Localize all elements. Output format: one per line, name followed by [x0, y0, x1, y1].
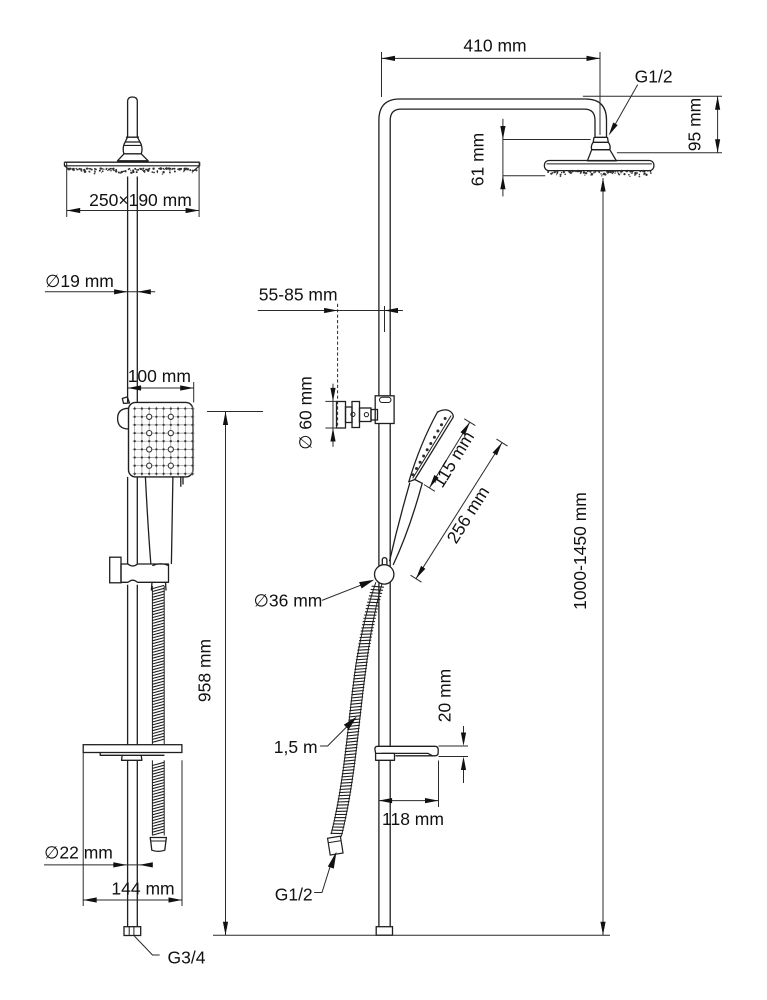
svg-text:1,5 m: 1,5 m: [274, 737, 318, 757]
svg-text:∅19 mm: ∅19 mm: [45, 271, 114, 291]
svg-text:256 mm: 256 mm: [443, 483, 494, 547]
svg-text:∅ 60 mm: ∅ 60 mm: [296, 376, 316, 450]
svg-text:100 mm: 100 mm: [128, 366, 191, 386]
svg-text:958 mm: 958 mm: [195, 639, 215, 702]
svg-text:61 mm: 61 mm: [468, 133, 488, 186]
svg-text:1000-1450 mm: 1000-1450 mm: [570, 492, 590, 610]
svg-text:118 mm: 118 mm: [382, 809, 444, 829]
svg-text:55-85 mm: 55-85 mm: [259, 284, 338, 304]
svg-text:G1/2: G1/2: [275, 885, 313, 905]
svg-text:144 mm: 144 mm: [111, 879, 174, 899]
svg-text:410 mm: 410 mm: [463, 36, 526, 56]
svg-text:G1/2: G1/2: [635, 67, 673, 87]
svg-text:20 mm: 20 mm: [435, 669, 455, 722]
svg-text:95 mm: 95 mm: [685, 98, 705, 151]
svg-text:115 mm: 115 mm: [429, 428, 478, 491]
svg-text:∅36 mm: ∅36 mm: [254, 591, 323, 611]
svg-text:∅22 mm: ∅22 mm: [44, 843, 113, 863]
svg-text:250×190 mm: 250×190 mm: [89, 190, 192, 210]
svg-text:G3/4: G3/4: [168, 948, 206, 968]
